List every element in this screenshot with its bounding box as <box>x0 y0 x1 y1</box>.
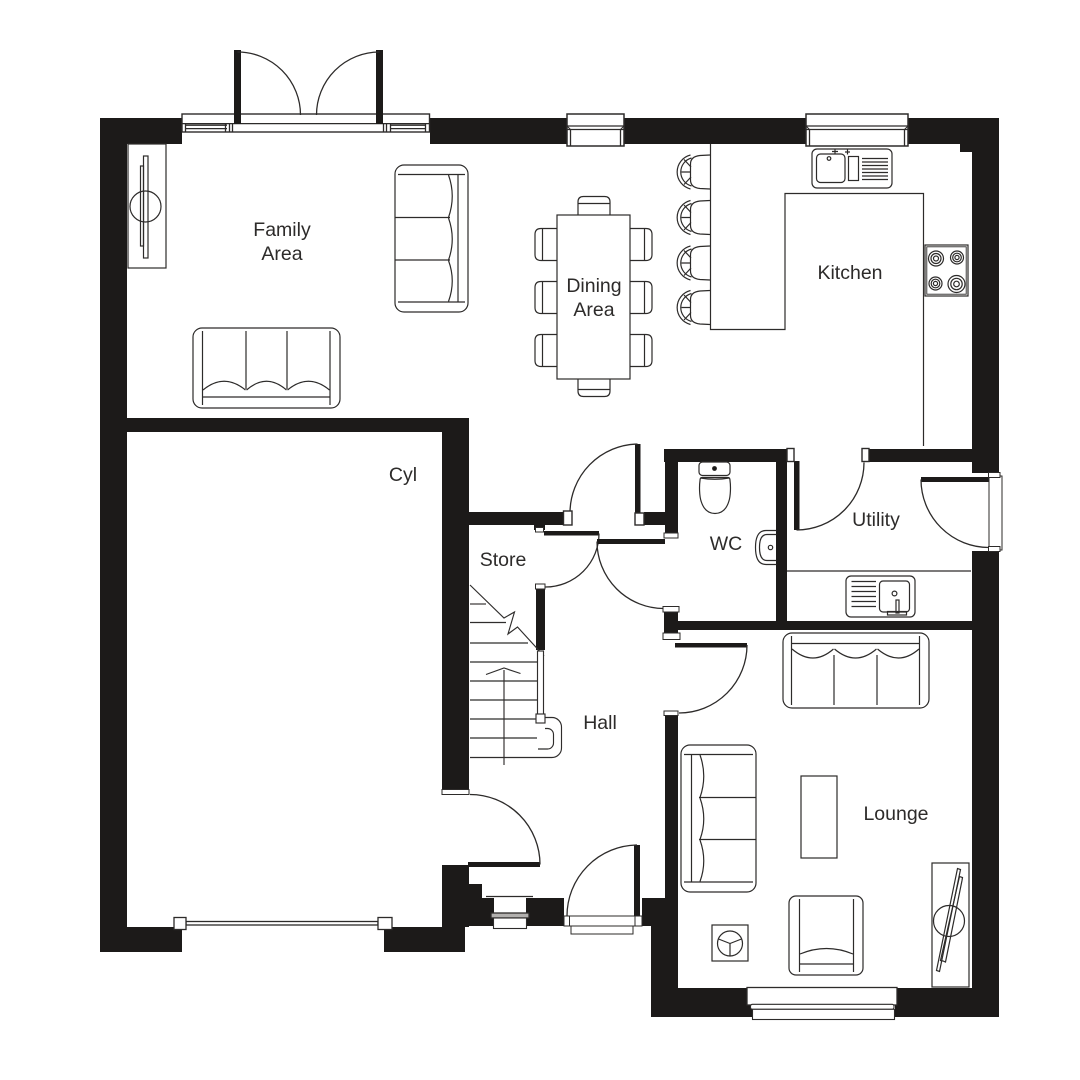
svg-text:WC: WC <box>710 533 743 555</box>
svg-text:Area: Area <box>573 299 614 321</box>
svg-text:Lounge: Lounge <box>863 803 928 825</box>
svg-text:Hall: Hall <box>583 712 617 734</box>
svg-text:Store: Store <box>480 549 527 571</box>
svg-text:Family: Family <box>253 219 311 241</box>
svg-text:Dining: Dining <box>566 275 621 297</box>
svg-text:Utility: Utility <box>852 509 900 531</box>
svg-text:Area: Area <box>261 243 302 265</box>
svg-text:Cyl: Cyl <box>389 464 417 486</box>
svg-text:Kitchen: Kitchen <box>817 262 882 284</box>
